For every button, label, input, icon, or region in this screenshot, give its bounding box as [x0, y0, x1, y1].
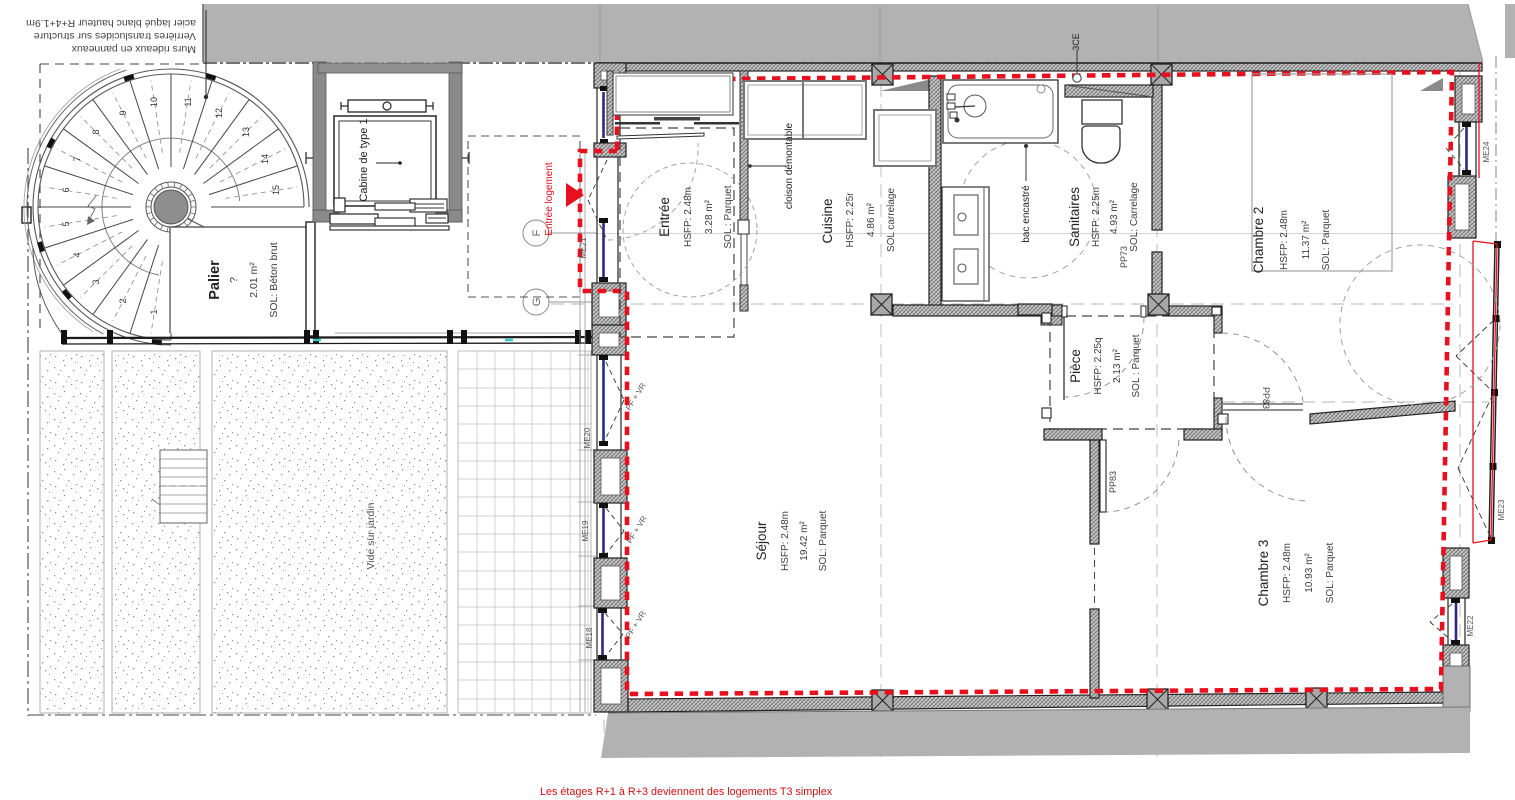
svg-text:2: 2 [118, 298, 128, 303]
svg-text:10.93 m²: 10.93 m² [1304, 553, 1315, 593]
svg-text:HSFP: 2.48m: HSFP: 2.48m [683, 187, 694, 247]
svg-text:HSFP: 2.25m: HSFP: 2.25m [1091, 187, 1102, 247]
svg-text:ME23: ME23 [1497, 499, 1506, 520]
svg-text:5: 5 [61, 221, 71, 226]
svg-text:Cuisine: Cuisine [820, 198, 835, 243]
svg-text:SOL : Parquet: SOL : Parquet [723, 185, 734, 248]
svg-text:F: F [531, 229, 543, 236]
svg-text:PP83: PP83 [1108, 471, 1118, 493]
svg-text:7: 7 [72, 156, 82, 161]
svg-text:4.86 m²: 4.86 m² [866, 202, 877, 237]
svg-text:Pièce: Pièce [1068, 349, 1083, 383]
svg-text:ME24: ME24 [1482, 141, 1491, 162]
svg-text:9: 9 [118, 110, 128, 115]
svg-text:Chambre 2: Chambre 2 [1251, 207, 1266, 274]
svg-text:Vide sur jardin: Vide sur jardin [365, 502, 377, 569]
svg-text:Les étages R+1 à R+3 deviennen: Les étages R+1 à R+3 deviennent des loge… [540, 786, 833, 798]
svg-text:ME20: ME20 [583, 427, 592, 448]
svg-text:HSFP: 2.48m: HSFP: 2.48m [1279, 210, 1290, 270]
svg-text:PP83: PP83 [1261, 387, 1271, 409]
svg-text:14: 14 [260, 154, 270, 164]
svg-text:ME18: ME18 [585, 627, 594, 648]
svg-text:Séjour: Séjour [754, 521, 769, 561]
svg-text:6: 6 [61, 187, 71, 192]
svg-text:1: 1 [149, 309, 159, 314]
svg-text:HSFP: 2.48m: HSFP: 2.48m [780, 511, 791, 571]
svg-text:HSFP: 2.25r: HSFP: 2.25r [845, 192, 856, 248]
svg-text:3CE: 3CE [1071, 33, 1081, 51]
svg-text:SOL : Parquet: SOL : Parquet [1131, 334, 1142, 397]
svg-text:3: 3 [91, 279, 101, 284]
svg-text:15: 15 [271, 185, 281, 195]
svg-text:Verrières translucides sur str: Verrières translucides sur structure [34, 30, 196, 42]
svg-text:2.01 m²: 2.01 m² [248, 262, 260, 298]
svg-text:3.28 m²: 3.28 m² [704, 199, 715, 234]
svg-text:8: 8 [91, 129, 101, 134]
svg-text:G: G [531, 298, 543, 307]
svg-text:ME19: ME19 [581, 520, 590, 541]
svg-text:bac encastré: bac encastré [1021, 185, 1032, 243]
svg-text:SOL carrelage: SOL carrelage [886, 188, 897, 253]
svg-text:Chambre 3: Chambre 3 [1256, 540, 1271, 607]
svg-text:12: 12 [214, 108, 224, 118]
svg-text:SOL: Carrelage: SOL: Carrelage [1129, 182, 1140, 252]
svg-text:13: 13 [241, 127, 251, 137]
svg-text:Sanitaires: Sanitaires [1067, 187, 1082, 247]
svg-text:Entrée logement: Entrée logement [544, 162, 555, 236]
svg-text:ME21: ME21 [579, 237, 588, 258]
svg-text:SOL: Parquet: SOL: Parquet [818, 510, 829, 571]
svg-text:19.42 m²: 19.42 m² [799, 521, 810, 561]
svg-text:4: 4 [72, 252, 82, 257]
svg-text:Murs rideaux en panneaux: Murs rideaux en panneaux [71, 43, 196, 55]
svg-text:acier laqué blanc hauteur R+4+: acier laqué blanc hauteur R+4+1.9m [26, 17, 196, 29]
svg-text:10: 10 [149, 97, 159, 107]
svg-text:Entrée: Entrée [657, 197, 672, 237]
svg-text:SOL: Parquet: SOL: Parquet [1325, 542, 1336, 603]
svg-text:HSFP: 2.25q: HSFP: 2.25q [1093, 337, 1104, 394]
svg-text:11: 11 [183, 97, 193, 106]
svg-text:11.37 m²: 11.37 m² [1301, 220, 1312, 259]
svg-text:ME22: ME22 [1466, 615, 1475, 636]
svg-text:cloison démontable: cloison démontable [784, 122, 795, 209]
svg-text:PP73: PP73 [1119, 246, 1129, 268]
svg-text:SOL: Béton brut: SOL: Béton brut [268, 242, 280, 317]
svg-text:2.13 m²: 2.13 m² [1112, 348, 1123, 383]
svg-text:?: ? [228, 277, 240, 283]
svg-text:Cabine de type 1: Cabine de type 1 [358, 118, 370, 201]
svg-text:4.93 m²: 4.93 m² [1109, 199, 1120, 234]
svg-text:HSFP: 2.48m: HSFP: 2.48m [1282, 543, 1293, 603]
svg-text:Palier: Palier [207, 260, 223, 300]
svg-text:SOL: Parquet: SOL: Parquet [1321, 209, 1332, 270]
